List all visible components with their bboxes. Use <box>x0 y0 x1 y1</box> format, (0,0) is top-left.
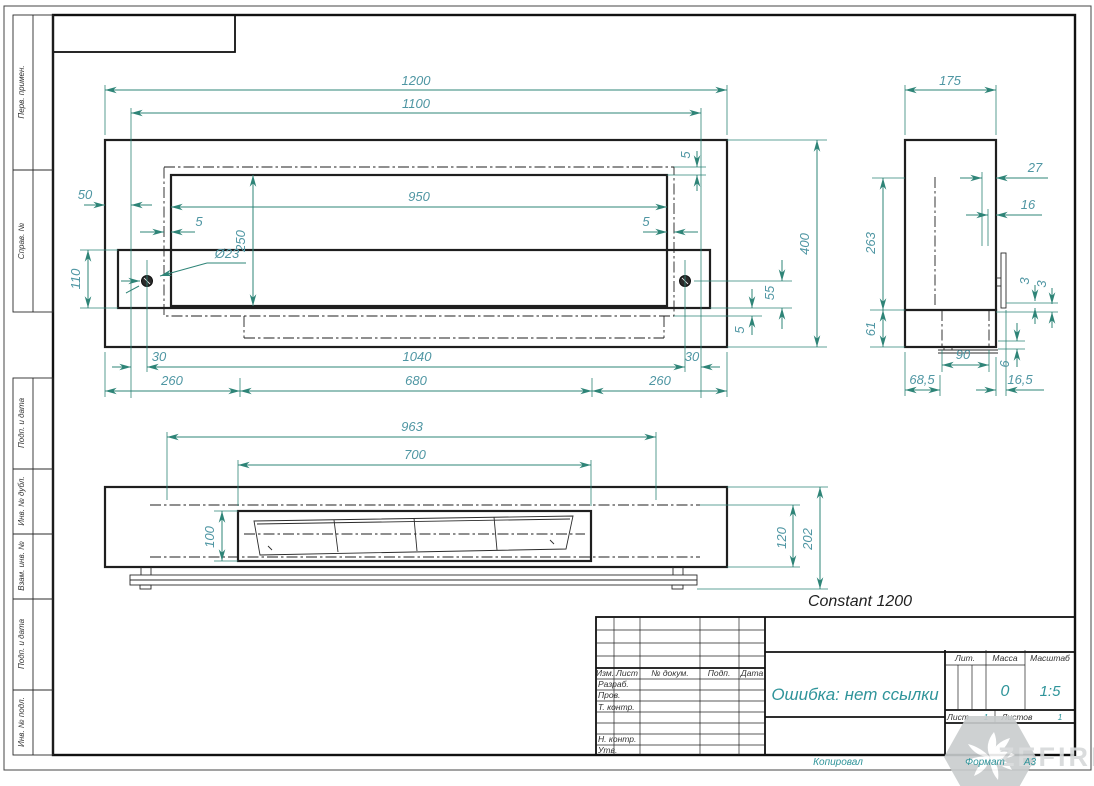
dim-front-gap-bottom: 5 <box>732 326 747 334</box>
tb-row-nkontr: Н. контр. <box>598 734 636 744</box>
dim-front-leg-left: 260 <box>160 373 183 388</box>
dim-bottom-total-depth: 202 <box>800 527 815 550</box>
front-view <box>105 140 727 347</box>
copied-label: Копировал <box>813 757 863 768</box>
top-stamp-box <box>53 15 235 52</box>
format-value: А3 <box>1023 757 1037 768</box>
dim-side-off-top: 27 <box>1027 160 1043 175</box>
dim-side-height-base: 61 <box>863 322 878 336</box>
tb-col-list: Лист <box>615 668 638 678</box>
dim-front-width-frame: 1100 <box>402 96 431 111</box>
zefire-watermark: ZEFIRE <box>944 716 1094 786</box>
dim-bottom-inner-depth: 120 <box>774 526 789 548</box>
dim-front-offset-left: 50 <box>78 187 93 202</box>
dim-front-leg-center: 680 <box>405 373 427 388</box>
tb-mass-value: 0 <box>1001 683 1010 700</box>
dim-front-gap-top: 5 <box>678 151 693 159</box>
dim-side-plate2: 3 <box>1034 280 1049 288</box>
tb-scale-label: Масштаб <box>1030 653 1071 663</box>
dim-front-holes-span: 1040 <box>403 349 433 364</box>
dim-bottom-burner: 700 <box>404 447 426 462</box>
dim-front-height-outer: 400 <box>797 232 812 254</box>
bottom-view <box>105 487 727 589</box>
dim-side-plate1: 3 <box>1017 277 1032 285</box>
side-view <box>905 140 1006 353</box>
dim-front-bolt-offset: 55 <box>762 285 777 300</box>
dim-front-edge-right: 30 <box>685 349 700 364</box>
tb-col-podp: Подп. <box>708 668 731 678</box>
tb-row-prov: Пров. <box>598 690 620 700</box>
tb-mass-label: Масса <box>992 653 1017 663</box>
format-label: Формат <box>965 757 1005 768</box>
dim-front-gap-left: 5 <box>195 214 203 229</box>
dim-side-off-left: 68,5 <box>909 372 935 387</box>
zefire-watermark-text: ZEFIRE <box>998 742 1094 772</box>
tb-col-docnum: № докум. <box>651 668 688 678</box>
dim-side-base-width: 90 <box>956 347 971 362</box>
dim-side-rail: 6 <box>997 360 1012 368</box>
tb-row-tkontr: Т. контр. <box>598 702 635 712</box>
tb-lit-label: Лит. <box>954 653 975 663</box>
dim-side-depth: 175 <box>939 73 961 88</box>
margin-label: Подп. и дата <box>17 397 26 448</box>
dim-front-height-band: 110 <box>68 268 83 289</box>
tb-row-razrab: Разраб. <box>598 679 629 689</box>
bottom-view-dimensions: 963 700 100 120 202 <box>167 419 828 589</box>
dim-front-leg-right: 260 <box>648 373 671 388</box>
margin-label: Справ. № <box>17 222 26 259</box>
tb-sheets-value: 1 <box>1058 712 1063 722</box>
left-margin-columns: Перв. примен. Справ. № Подп. и дата Инв.… <box>13 15 53 755</box>
margin-label: Подп. и дата <box>17 618 26 669</box>
sheet-frame <box>4 6 1091 770</box>
margin-label: Перв. примен. <box>17 65 26 118</box>
margin-label: Инв. № дубл. <box>17 476 26 525</box>
dim-front-gap-right: 5 <box>642 214 650 229</box>
tb-col-data: Дата <box>740 668 764 678</box>
margin-label: Инв. № подл. <box>17 697 26 747</box>
dim-side-off-mid: 16 <box>1021 197 1036 212</box>
dim-front-width-window: 950 <box>408 189 430 204</box>
side-view-dimensions: 175 27 16 263 61 3 3 90 6 68,5 <box>863 73 1058 396</box>
tb-col-izm: Изм. <box>596 668 614 678</box>
tb-row-utv: Утв. <box>597 745 617 755</box>
dim-front-hole-dia: Ø23 <box>214 246 240 261</box>
dim-front-width-outer: 1200 <box>402 73 432 88</box>
front-view-dimensions: 1200 1100 950 250 5 5 5 50 110 Ø23 <box>68 73 827 398</box>
product-name-label: Constant 1200 <box>808 593 912 610</box>
dim-side-off-right: 16,5 <box>1007 372 1033 387</box>
drawing-sheet: Перв. примен. Справ. № Подп. и дата Инв.… <box>0 0 1094 786</box>
dim-side-height-inner: 263 <box>863 231 878 254</box>
dim-bottom-burner-depth: 100 <box>202 525 217 547</box>
tb-scale-value: 1:5 <box>1040 683 1062 700</box>
margin-label: Взам. инв. № <box>17 541 26 591</box>
mount-bracket <box>1001 253 1006 308</box>
dim-front-edge-left: 30 <box>152 349 167 364</box>
tb-doc-title: Ошибка: нет ссылки <box>771 685 939 704</box>
bottom-strip: Копировал Формат А3 <box>813 757 1036 768</box>
dim-bottom-glass: 963 <box>401 419 423 434</box>
